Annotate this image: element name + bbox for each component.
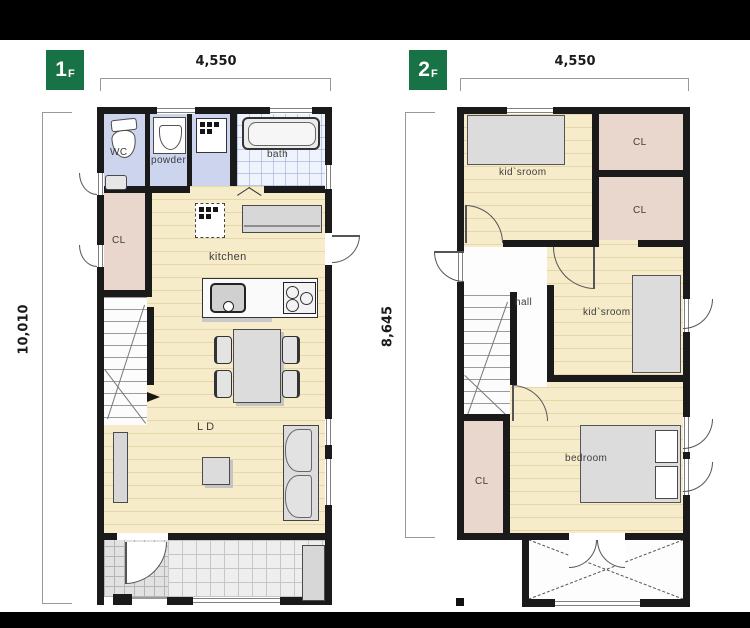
chair-icon: [214, 370, 232, 398]
wall-segment: [503, 240, 599, 247]
casement-window-arc: [683, 299, 713, 329]
counter-shadow: [202, 318, 272, 322]
casement-window-arc: [683, 419, 713, 449]
letterbox-top: [0, 0, 750, 40]
dimension-line: [100, 78, 331, 79]
wall-segment: [547, 285, 554, 382]
sofa-cushion-icon: [285, 429, 312, 472]
hall-floor: [517, 295, 547, 387]
floor2-badge: 2 F: [409, 50, 447, 90]
wall-segment: [168, 533, 325, 540]
wall-segment: [683, 452, 690, 459]
floor2-height-dimension: 8,645: [381, 287, 396, 367]
bathtub-inner-icon: [248, 122, 316, 146]
room-label-closet-top: CL: [633, 137, 647, 148]
bed: [632, 275, 681, 373]
floor2-width-dimension: 4,550: [495, 54, 655, 69]
burner-icon: [286, 299, 299, 312]
dimension-line: [460, 78, 689, 79]
fridge-placeholder-icon: [195, 203, 225, 238]
window: [325, 419, 332, 445]
wall-segment: [264, 186, 332, 193]
dimension-line: [42, 112, 43, 604]
room-label-hall: hall: [515, 297, 532, 308]
door-leaf: [125, 542, 127, 584]
wall-segment: [145, 114, 150, 186]
washer-icon: [196, 118, 227, 153]
wall-segment: [457, 107, 464, 252]
window: [157, 107, 195, 114]
wall-segment: [97, 290, 152, 297]
wall-segment: [325, 107, 332, 165]
dimension-tick: [42, 112, 72, 113]
hall-floor: [464, 247, 547, 295]
pillow-icon: [655, 466, 678, 499]
window: [555, 600, 640, 607]
window: [270, 107, 312, 114]
plan-marker-dot: [456, 598, 464, 606]
wall-segment: [522, 540, 529, 607]
floor1-plan: WC powder bath CL kitchen LD: [97, 107, 332, 607]
room-label-living-dining: LD: [197, 421, 217, 433]
dimension-tick: [405, 112, 435, 113]
window: [325, 165, 332, 189]
wall-segment: [683, 495, 690, 533]
room-label-kids-room-top: kid`sroom: [499, 167, 547, 178]
wall-segment: [167, 597, 193, 605]
wall-segment: [683, 107, 690, 299]
door-swing-arc: [79, 173, 97, 195]
wall-segment: [640, 599, 690, 607]
room-label-kids-room-mid: kid`sroom: [583, 307, 631, 318]
wall-segment: [457, 533, 569, 540]
wall-segment: [457, 282, 464, 533]
kitchen-back-counter: [242, 205, 322, 233]
floor1-width-dimension: 4,550: [136, 54, 296, 69]
wall-segment: [97, 195, 104, 245]
wall-segment: [503, 421, 510, 533]
burner-icon: [300, 292, 313, 305]
room-label-closet: CL: [112, 235, 126, 246]
floor2-badge-number: 2: [418, 58, 430, 82]
burner-icon: [286, 286, 299, 299]
dimension-line: [405, 112, 406, 538]
window: [97, 173, 104, 195]
door-swing-arc: [434, 252, 464, 282]
dimension-tick: [460, 78, 461, 91]
coffee-table: [202, 457, 230, 485]
window: [97, 245, 104, 267]
wall-segment: [683, 540, 690, 607]
sink-drain-icon: [223, 301, 234, 312]
floor1-badge-number: 1: [55, 58, 67, 82]
door-leaf: [332, 235, 360, 237]
dimension-tick: [688, 78, 689, 91]
stairs-arrow-icon: [147, 392, 160, 402]
counter-edge-line: [244, 225, 320, 227]
pillow-icon: [655, 430, 678, 463]
wall-segment: [683, 332, 690, 417]
room-label-kitchen: kitchen: [209, 251, 247, 263]
wall-segment: [325, 505, 332, 605]
casement-window-arc: [683, 462, 713, 492]
room-label-powder: powder: [151, 155, 186, 166]
floor1-height-dimension: 10,010: [17, 290, 32, 370]
wall-segment: [113, 594, 132, 605]
door-leaf: [465, 205, 467, 243]
window: [325, 459, 332, 505]
window: [507, 107, 553, 114]
dimension-tick: [330, 78, 331, 91]
chair-icon: [282, 370, 300, 398]
wall-segment: [325, 265, 332, 419]
dimension-tick: [100, 78, 101, 91]
wall-segment: [97, 533, 117, 540]
shoe-cabinet: [302, 545, 325, 601]
wall-segment: [457, 414, 510, 421]
room-label-wc: WC: [110, 147, 127, 158]
dimension-tick: [42, 603, 72, 604]
cabinet: [113, 432, 128, 503]
window: [193, 597, 280, 605]
door-swing-arc: [79, 245, 97, 267]
sofa-cushion-icon: [285, 475, 312, 518]
wall-segment: [522, 599, 555, 607]
wall-segment: [638, 240, 683, 247]
door-swing-arc: [332, 235, 360, 263]
bed: [467, 115, 565, 165]
wall-segment: [625, 533, 690, 540]
wall-segment: [457, 107, 690, 114]
wall-segment: [325, 445, 332, 459]
wall-segment: [325, 189, 332, 233]
wall-segment: [592, 107, 599, 247]
dimension-tick: [405, 537, 435, 538]
chair-icon: [214, 336, 232, 364]
wall-segment: [547, 375, 683, 382]
floor2-badge-suffix: F: [431, 68, 438, 80]
chair-icon: [282, 336, 300, 364]
door-leaf: [434, 251, 464, 253]
room-label-closet-mid: CL: [633, 205, 647, 216]
hand-sink-icon: [105, 175, 127, 190]
floor1-badge-suffix: F: [68, 68, 75, 80]
door-leaf: [593, 247, 595, 289]
dining-table: [233, 329, 281, 403]
wall-segment: [97, 267, 104, 605]
wall-segment: [147, 307, 154, 385]
wall-segment: [230, 114, 237, 186]
wall-segment: [592, 170, 683, 177]
letterbox-bottom: [0, 612, 750, 628]
entrance-step-line: [132, 597, 168, 599]
wall-segment: [145, 193, 152, 297]
room-label-closet-bottom: CL: [475, 476, 489, 487]
room-label-bath: bath: [267, 149, 288, 160]
floor2-plan: kid`sroom CL CL hall kid`sroom bedroom C…: [457, 107, 690, 607]
wall-segment: [187, 114, 192, 186]
wall-segment: [97, 107, 104, 173]
floor1-badge: 1 F: [46, 50, 84, 90]
door-leaf: [512, 385, 514, 421]
room-label-bedroom: bedroom: [565, 453, 607, 464]
